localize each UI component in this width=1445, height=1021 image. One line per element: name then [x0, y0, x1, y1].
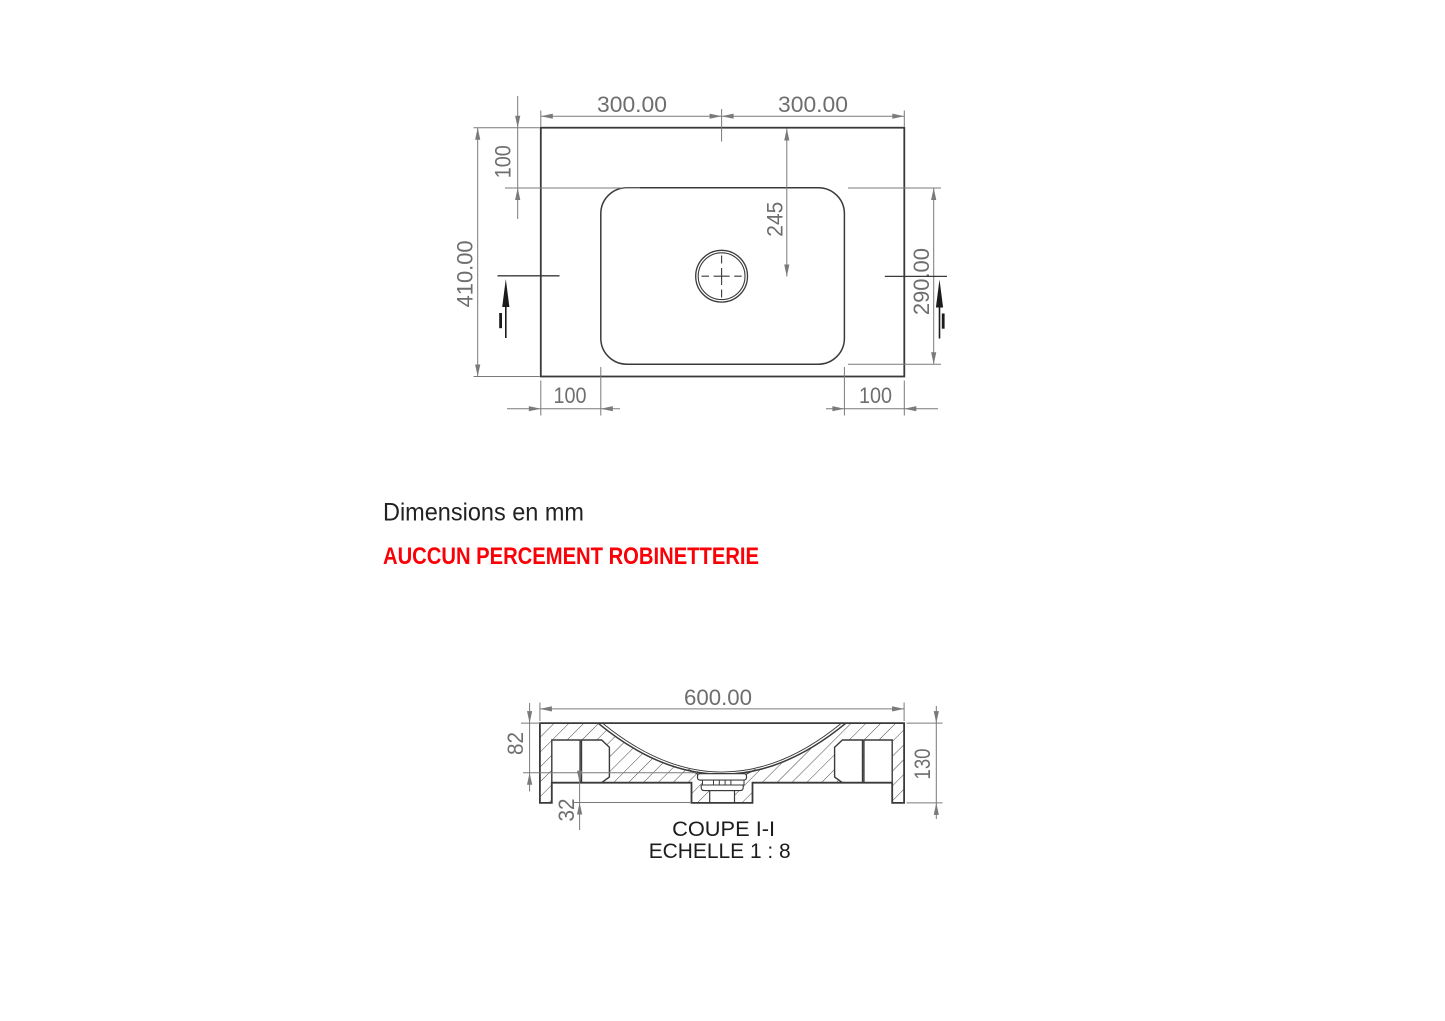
svg-text:290.00: 290.00	[909, 248, 934, 315]
svg-text:130: 130	[910, 749, 935, 780]
svg-text:100: 100	[859, 383, 892, 408]
svg-text:ECHELLE 1 : 8: ECHELLE 1 : 8	[649, 840, 791, 863]
svg-text:600.00: 600.00	[684, 685, 752, 710]
svg-text:245: 245	[762, 202, 787, 237]
svg-text:COUPE I-I: COUPE I-I	[672, 818, 775, 841]
svg-text:300.00: 300.00	[597, 92, 667, 117]
svg-text:82: 82	[503, 732, 528, 755]
svg-text:100: 100	[554, 383, 587, 408]
svg-text:300.00: 300.00	[778, 92, 848, 117]
svg-text:410.00: 410.00	[452, 240, 477, 307]
svg-text:Dimensions en mm: Dimensions en mm	[383, 499, 584, 527]
svg-text:100: 100	[490, 145, 515, 178]
svg-text:AUCCUN PERCEMENT ROBINETTERIE: AUCCUN PERCEMENT ROBINETTERIE	[383, 543, 759, 570]
svg-text:32: 32	[554, 799, 579, 822]
